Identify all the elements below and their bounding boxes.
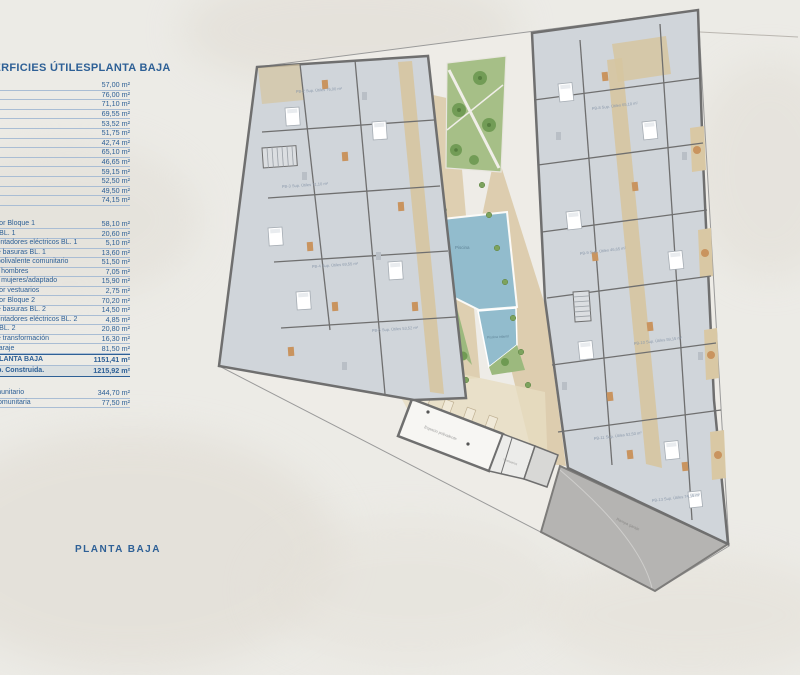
surface-value: 76,00 m² [102, 91, 130, 99]
surface-label: Total Sup. Construida. [0, 366, 44, 376]
table-header: SUPERFICIES ÚTILES PLANTA BAJA [0, 62, 130, 74]
surface-label: TOTAL PLANTA BAJA [0, 355, 43, 365]
surface-value: 16,30 m² [102, 335, 130, 343]
surface-value: 74,15 m² [102, 196, 130, 204]
surface-value: 20,80 m² [102, 325, 130, 333]
surface-value: 4,85 m² [106, 316, 130, 324]
surface-label: Cuarto contadores eléctricos BL. 2 [0, 316, 77, 324]
surface-row: 69,55 m² [0, 110, 130, 120]
pool-label: Piscina [455, 245, 470, 250]
surface-value: 46,65 m² [102, 158, 130, 166]
boundary-line [700, 32, 798, 37]
surface-label: Distribuidor Bloque 2 [0, 297, 35, 305]
surface-label: Centro de transformación [0, 335, 49, 343]
table-title-right: PLANTA BAJA [91, 62, 171, 74]
surface-value: 53,52 m² [102, 120, 130, 128]
table-title-left: SUPERFICIES ÚTILES [0, 62, 91, 74]
surface-value: 15,90 m² [102, 277, 130, 285]
surface-value: 77,50 m² [102, 399, 130, 407]
surface-label: Acceso garaje [0, 345, 14, 353]
surface-label: Distribuidor vestuarios [0, 287, 39, 295]
surface-label: Piscina comunitaria [0, 399, 31, 407]
surface-label: Vestuario hombres [0, 268, 28, 276]
stairs [262, 146, 297, 168]
surface-value: 52,50 m² [102, 177, 130, 185]
surface-value: 20,60 m² [102, 230, 130, 238]
surface-label: Distribuidor Bloque 1 [0, 220, 35, 228]
surface-label: Cuarto de basuras BL. 2 [0, 306, 46, 314]
surface-label: Espacio polivalente comunitario [0, 258, 68, 266]
palm-tree [501, 358, 509, 366]
garden [446, 56, 506, 172]
surface-value: 51,75 m² [102, 129, 130, 137]
surface-value: 14,50 m² [102, 306, 130, 314]
surface-value: 71,10 m² [102, 100, 130, 108]
surface-value: 49,50 m² [102, 187, 130, 195]
surface-row: Centro de transformación16,30 m² [0, 335, 130, 345]
surface-row: 46,65 m² [0, 158, 130, 168]
surface-value: 81,50 m² [102, 345, 130, 353]
surfaces-table: SUPERFICIES ÚTILES PLANTA BAJA 57,00 m² … [0, 62, 130, 408]
surface-value: 65,10 m² [102, 148, 130, 156]
surface-value: 7,05 m² [106, 268, 130, 276]
surface-value: 58,10 m² [102, 220, 130, 228]
plan-footer-title: PLANTA BAJA [75, 544, 161, 555]
surface-label: Vestuario mujeres/adaptado [0, 277, 57, 285]
surface-value: 5,10 m² [106, 239, 130, 247]
surface-value: 70,20 m² [102, 297, 130, 305]
surface-value: 69,55 m² [102, 110, 130, 118]
surface-value: 2,75 m² [106, 287, 130, 295]
surface-label: Almacén BL. 2 [0, 325, 16, 333]
surface-value: 57,00 m² [102, 81, 130, 89]
surface-row: Piscina comunitaria77,50 m² [0, 399, 130, 409]
surface-value: 1151,41 m² [94, 355, 130, 365]
surface-row: 74,15 m² [0, 196, 130, 206]
surface-row: Acceso garaje81,50 m² [0, 344, 130, 354]
surface-label: Cuarto de basuras BL. 1 [0, 249, 46, 257]
surface-value: 1215,92 m² [93, 366, 130, 376]
surface-value: 13,60 m² [102, 249, 130, 257]
surface-label: Almacén BL. 1 [0, 230, 16, 238]
total-row: Total Sup. Construida.1215,92 m² [0, 366, 130, 377]
surface-label: Cuarto contadores eléctricos BL. 1 [0, 239, 77, 247]
surface-value: 42,74 m² [102, 139, 130, 147]
surface-row: Distribuidor Bloque 158,10 m² [0, 220, 130, 230]
surface-value: 59,15 m² [102, 168, 130, 176]
surface-label: Patio comunitario [0, 389, 24, 397]
surface-value: 51,50 m² [102, 258, 130, 266]
total-row: TOTAL PLANTA BAJA1151,41 m² [0, 354, 130, 366]
stairs [573, 291, 591, 322]
surface-value: 344,70 m² [98, 389, 130, 397]
left-building [219, 56, 466, 400]
